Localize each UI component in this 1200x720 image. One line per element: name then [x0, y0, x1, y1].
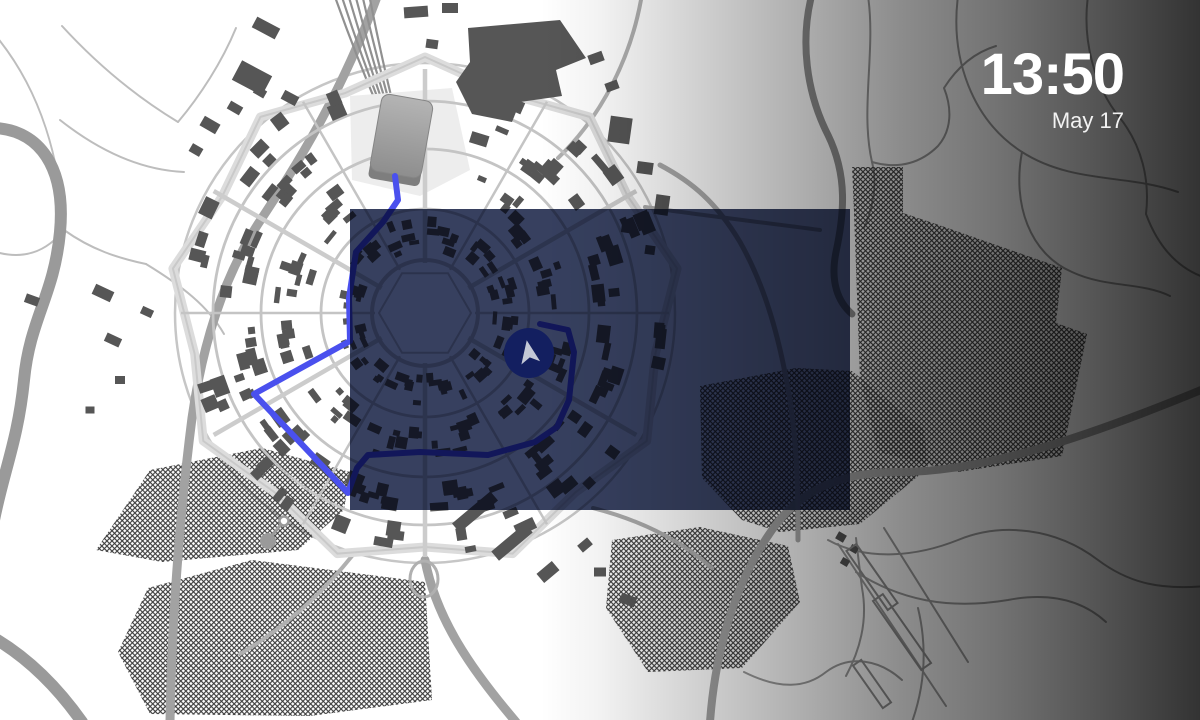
building	[594, 568, 606, 577]
building	[282, 328, 295, 339]
route-overview-panel[interactable]	[350, 209, 850, 510]
building	[442, 3, 458, 13]
building	[607, 116, 632, 145]
building	[86, 407, 95, 414]
building	[248, 327, 256, 335]
building	[286, 289, 297, 298]
building	[279, 338, 290, 349]
clock-date: May 17	[981, 108, 1124, 134]
building	[245, 337, 257, 348]
vehicle-location-puck	[503, 327, 555, 379]
clock-widget: 13:50 May 17	[981, 46, 1124, 134]
building	[220, 285, 233, 298]
clock-time: 13:50	[981, 46, 1124, 104]
nav-screen: 13:50 May 17	[0, 0, 1200, 720]
park-area	[118, 560, 432, 716]
building	[425, 39, 438, 50]
building	[115, 376, 125, 384]
building	[281, 320, 293, 330]
building	[386, 520, 402, 537]
building	[404, 6, 429, 19]
building	[636, 161, 654, 175]
